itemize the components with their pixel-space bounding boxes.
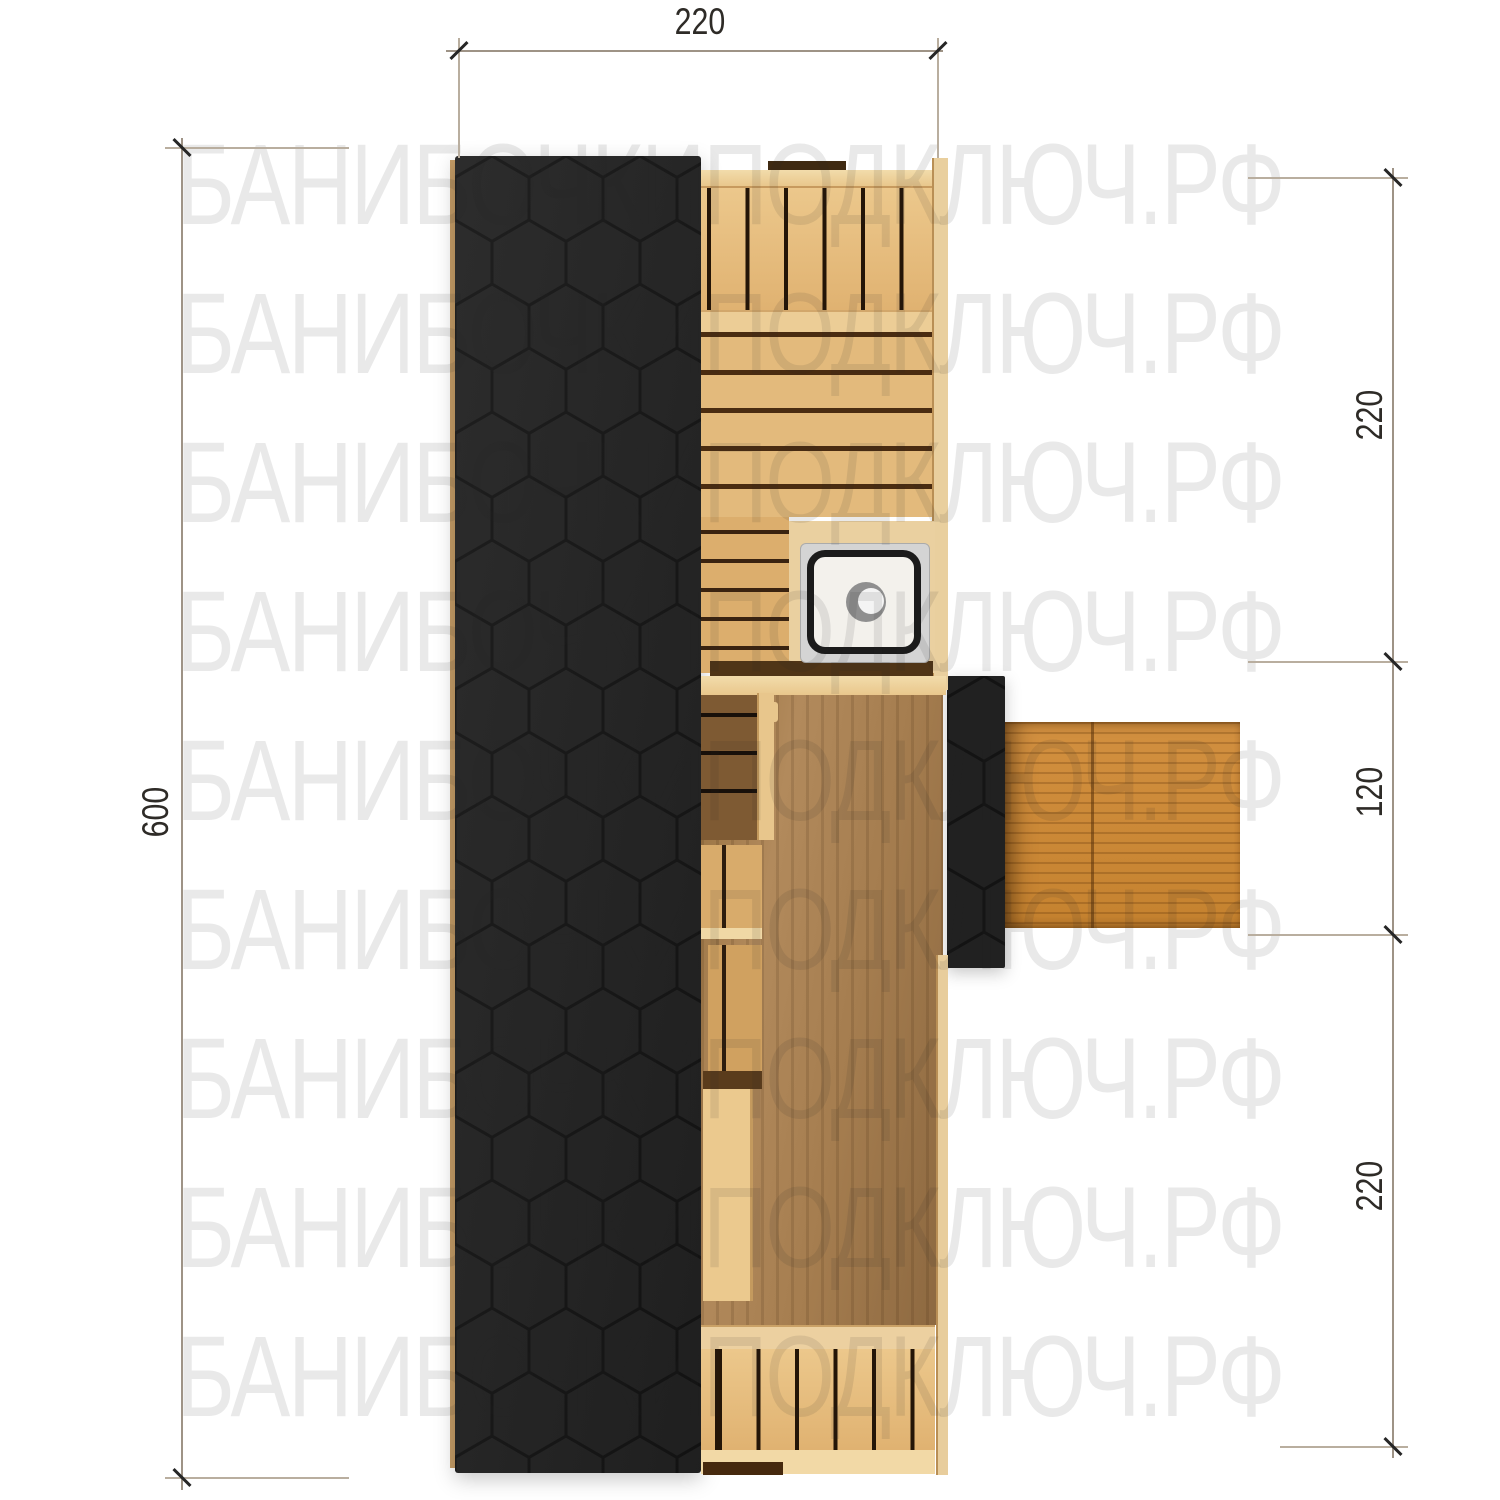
floor-plan-page: { "watermark": { "text": "БАНИБОЧКИПОДКЛ… (0, 0, 1500, 1500)
right-dim-ext-3 (1248, 934, 1408, 936)
right-dim-ext-1 (1248, 177, 1408, 179)
deck-board-seam (1091, 722, 1094, 928)
porch-roof (947, 676, 1005, 968)
bottom-bench-slats (701, 1347, 935, 1450)
crate-1-seam (722, 845, 726, 930)
bench-edge-strip (701, 310, 932, 334)
right-dim-label-1: 220 (1350, 366, 1390, 464)
bottom-bench-edge (701, 1325, 935, 1349)
crate-1-edge (701, 928, 762, 939)
right-dim-label-3: 220 (1350, 1137, 1390, 1235)
top-dim-line (446, 50, 943, 52)
crate-2-front-bar (703, 1071, 762, 1089)
left-dim-line (181, 138, 183, 1490)
right-dim-ext-4 (1280, 1446, 1408, 1448)
door-hinge-tab (769, 702, 778, 722)
right-wall-lower (936, 955, 948, 1475)
left-dim-label: 600 (136, 763, 176, 861)
top-dim-ext-left (458, 38, 460, 158)
top-dim-label: 220 (651, 2, 749, 42)
top-dim-ext-right (937, 38, 939, 158)
sink-drain-cap (858, 588, 884, 614)
right-dim-label-2: 120 (1350, 743, 1390, 841)
left-dim-ext-bottom (165, 1477, 349, 1479)
storage-crate-1 (701, 845, 762, 930)
bottom-door-bar (703, 1462, 783, 1475)
crate-2-seam (722, 945, 726, 1073)
right-dim-line (1392, 168, 1394, 1458)
counter-front-edge (710, 661, 933, 676)
left-bench-slats (701, 695, 757, 840)
mid-wall-plank (701, 676, 946, 695)
wall-planks-horizontal (701, 332, 932, 517)
right-dim-ext-2 (1248, 661, 1408, 663)
storage-crate-2 (708, 945, 762, 1073)
side-bench-planks (701, 517, 789, 673)
lower-left-bench (703, 1089, 753, 1301)
top-bench-slats (701, 186, 932, 310)
top-wall-plank (701, 170, 946, 188)
entrance-deck (1005, 722, 1240, 928)
main-roof (455, 156, 701, 1473)
left-dim-ext-top (165, 147, 349, 149)
